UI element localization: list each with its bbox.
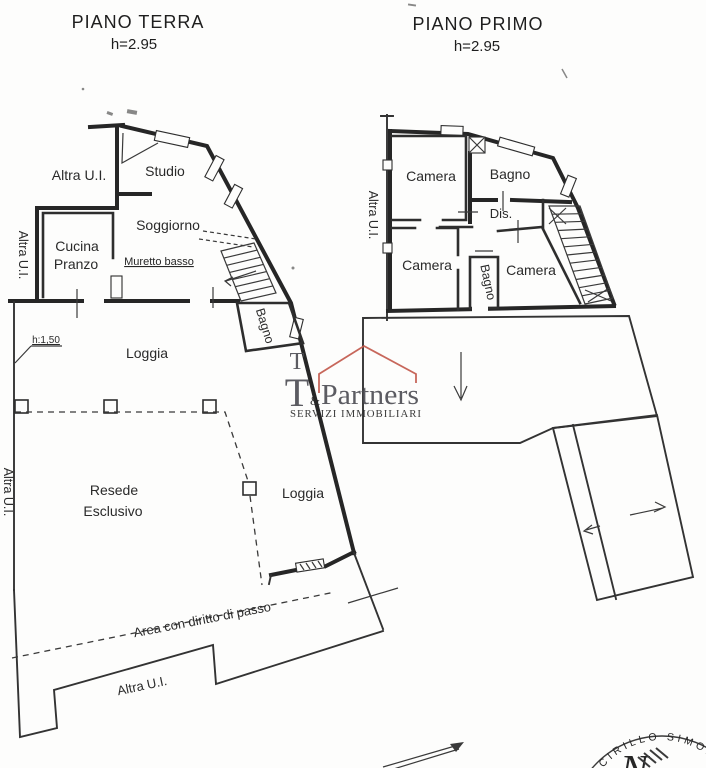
ground-floor-height: h=2.95 bbox=[111, 36, 157, 53]
studio-door-swing bbox=[122, 133, 158, 163]
room-label-bagno-ground: Bagno bbox=[253, 306, 277, 345]
loggia-window-sill bbox=[296, 559, 325, 572]
room-label-camera-bl: Camera bbox=[402, 257, 452, 273]
room-label-cucina-2: Pranzo bbox=[54, 256, 99, 272]
logo-ampersand: & bbox=[310, 393, 320, 408]
room-label-camera-tl: Camera bbox=[406, 168, 456, 184]
stamp-letter-n: N bbox=[619, 748, 650, 768]
room-label-soggiorno: Soggiorno bbox=[136, 217, 200, 233]
resede-dashed-boundary bbox=[15, 412, 262, 585]
north-arrow-icon bbox=[383, 742, 464, 768]
first-floor-title: PIANO PRIMO bbox=[412, 14, 543, 34]
ground-floor-plan: PIANO TERRA h=2.95 bbox=[1, 12, 398, 737]
muretto-basso-wall bbox=[111, 276, 122, 298]
label-altra-ui-bottom: Altra U.I. bbox=[116, 673, 169, 698]
logo-subtitle: SERVIZI IMMOBILIARI bbox=[290, 408, 422, 420]
label-h150: h:1,50 bbox=[32, 335, 60, 346]
floor-plan-sheet: PIANO TERRA h=2.95 bbox=[0, 0, 706, 768]
room-label-cucina-1: Cucina bbox=[55, 238, 99, 254]
room-label-altra-ui-side: Altra U.I. bbox=[16, 231, 30, 280]
room-label-altra-ui-first: Altra U.I. bbox=[366, 191, 380, 240]
right-arrow-icon bbox=[630, 502, 665, 515]
room-label-bagno-top: Bagno bbox=[490, 166, 531, 182]
left-arrow-icon bbox=[584, 525, 600, 534]
stamp-arc-text: CIRILLO SIMONA bbox=[597, 731, 706, 768]
room-label-resede-1: Resede bbox=[90, 482, 138, 498]
first-floor-height: h=2.95 bbox=[454, 38, 500, 55]
loggia-pillars bbox=[15, 400, 256, 495]
shaft-box bbox=[469, 137, 485, 153]
label-area-diritto-passo: Area con diritto di passo bbox=[132, 599, 272, 640]
room-label-camera-br: Camera bbox=[506, 262, 556, 278]
label-muretto-basso: Muretto basso bbox=[124, 256, 194, 268]
room-label-loggia-lower: Loggia bbox=[282, 485, 324, 501]
room-label-studio: Studio bbox=[145, 163, 185, 179]
room-label-bagno-small: Bagno bbox=[477, 263, 498, 301]
floor-plan-drawing: PIANO TERRA h=2.95 bbox=[0, 0, 706, 768]
h150-annotation bbox=[15, 346, 62, 363]
room-label-dis: Dis. bbox=[490, 206, 512, 221]
svg-text:CIRILLO SIMONA: CIRILLO SIMONA bbox=[597, 731, 706, 768]
ground-floor-walls bbox=[10, 125, 398, 737]
first-floor-plan: PIANO PRIMO h=2.95 bbox=[363, 14, 693, 600]
surveyor-stamp: CIRILLO SIMONA N bbox=[570, 731, 706, 768]
stairs-ground bbox=[199, 231, 276, 301]
room-label-loggia-upper: Loggia bbox=[126, 345, 168, 361]
ramp bbox=[553, 415, 693, 600]
room-label-altra-ui-top: Altra U.I. bbox=[52, 167, 106, 183]
room-label-altra-ui-side-lower: Altra U.I. bbox=[1, 468, 15, 517]
logo-partners: Partners bbox=[321, 379, 419, 411]
down-arrow-icon bbox=[454, 352, 467, 400]
ground-floor-title: PIANO TERRA bbox=[72, 12, 205, 32]
room-label-resede-2: Esclusivo bbox=[83, 503, 142, 519]
